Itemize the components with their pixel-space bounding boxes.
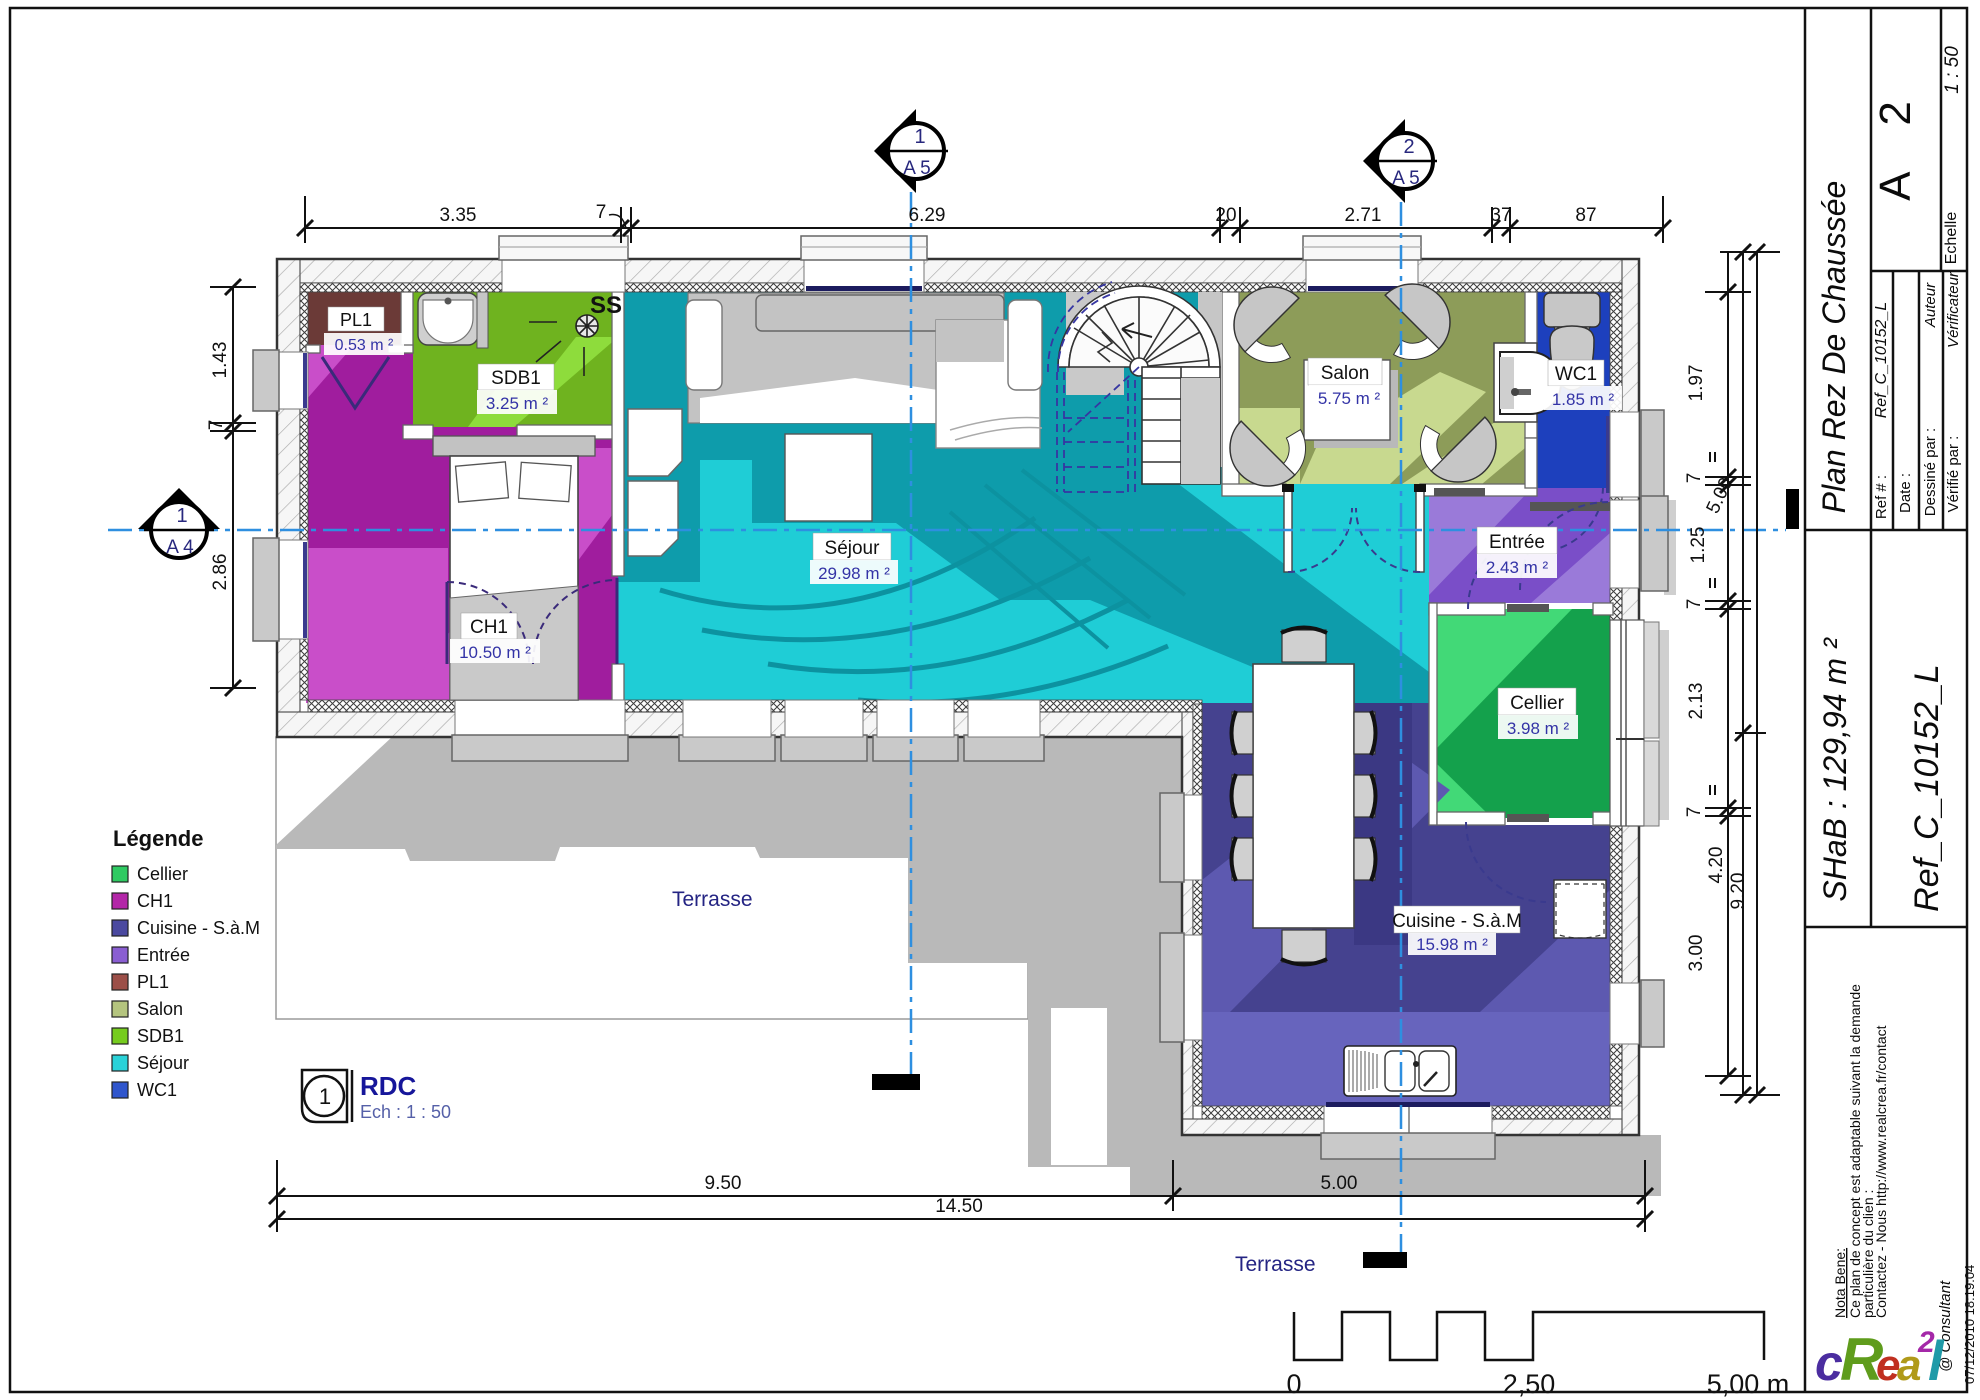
svg-text:3.98 m ²: 3.98 m ² — [1507, 719, 1570, 738]
svg-text:Salon: Salon — [1321, 363, 1370, 384]
svg-text:SDB1: SDB1 — [491, 368, 541, 389]
svg-text:3.00: 3.00 — [1686, 935, 1707, 972]
svg-text:A 4: A 4 — [166, 537, 194, 558]
svg-text:9.20: 9.20 — [1728, 873, 1749, 910]
svg-text:CH1: CH1 — [137, 891, 173, 911]
svg-text:Salon: Salon — [137, 999, 183, 1019]
svg-text:Séjour: Séjour — [825, 538, 881, 559]
svg-text:7: 7 — [1684, 599, 1705, 610]
svg-text:0.53 m ²: 0.53 m ² — [335, 337, 394, 354]
svg-text:Echelle: Echelle — [1943, 212, 1960, 265]
svg-text:Cuisine - S.à.M: Cuisine - S.à.M — [1392, 911, 1522, 932]
svg-text:Auteur: Auteur — [1922, 282, 1939, 328]
svg-text:CH1: CH1 — [470, 617, 508, 638]
svg-text:SS: SS — [590, 292, 622, 319]
svg-text:20: 20 — [1215, 205, 1236, 226]
svg-text:07/12/2010 18:19:04: 07/12/2010 18:19:04 — [1962, 1265, 1977, 1384]
svg-text:Vérifié par :: Vérifié par : — [1945, 436, 1962, 513]
svg-text:Ref_C_10152_L: Ref_C_10152_L — [1908, 664, 1946, 912]
svg-text:Entrée: Entrée — [1489, 532, 1545, 553]
svg-text:2.43 m ²: 2.43 m ² — [1486, 558, 1549, 577]
svg-text:A 5: A 5 — [1392, 168, 1419, 189]
svg-text:2,50: 2,50 — [1503, 1369, 1556, 1399]
svg-text:14.50: 14.50 — [935, 1196, 983, 1217]
svg-text:2.86: 2.86 — [210, 554, 231, 591]
svg-text:1.43: 1.43 — [210, 342, 231, 379]
svg-text:1 : 50: 1 : 50 — [1942, 46, 1963, 94]
svg-text:WC1: WC1 — [137, 1080, 177, 1100]
svg-text:Séjour: Séjour — [137, 1053, 189, 1073]
svg-text:Entrée: Entrée — [137, 945, 190, 965]
svg-text:SDB1: SDB1 — [137, 1026, 184, 1046]
svg-text:Cuisine - S.à.M: Cuisine - S.à.M — [137, 918, 260, 938]
svg-text:Ech : 1 : 50: Ech : 1 : 50 — [360, 1102, 451, 1122]
svg-text:7: 7 — [206, 420, 227, 431]
svg-text:c: c — [1815, 1335, 1843, 1391]
svg-text:7: 7 — [596, 202, 607, 223]
svg-text:Ref # :: Ref # : — [1873, 475, 1890, 519]
svg-text:Date :: Date : — [1897, 473, 1914, 513]
svg-text:Légende: Légende — [113, 826, 203, 851]
svg-text:87: 87 — [1575, 205, 1596, 226]
svg-text:Contactez - Nous http://www.re: Contactez - Nous http://www.realcrea.fr/… — [1873, 1025, 1889, 1318]
svg-text:1.25: 1.25 — [1688, 527, 1709, 564]
svg-text:1.97: 1.97 — [1686, 365, 1707, 402]
svg-text:3.35: 3.35 — [440, 205, 477, 226]
svg-text:Ref_C_10152_L: Ref_C_10152_L — [1873, 302, 1890, 419]
svg-text:Nota Bene:: Nota Bene: — [1832, 1248, 1848, 1318]
svg-text:5.75 m ²: 5.75 m ² — [1318, 389, 1381, 408]
svg-text:Terrasse: Terrasse — [672, 888, 753, 911]
svg-text:4.20: 4.20 — [1706, 847, 1727, 884]
svg-text:RDC: RDC — [360, 1071, 417, 1101]
svg-text:1.85 m ²: 1.85 m ² — [1552, 390, 1615, 409]
svg-text:Terrasse: Terrasse — [1235, 1253, 1316, 1276]
svg-text:Dessiné par :: Dessiné par : — [1922, 428, 1939, 516]
svg-text:0: 0 — [1286, 1369, 1301, 1399]
svg-text:Plan Rez De Chaussée: Plan Rez De Chaussée — [1816, 181, 1852, 514]
svg-text:WC1: WC1 — [1555, 364, 1597, 385]
svg-text:5.00: 5.00 — [1321, 1173, 1358, 1194]
svg-text:Cellier: Cellier — [137, 864, 188, 884]
svg-text:10.50 m ²: 10.50 m ² — [459, 643, 531, 662]
svg-text:1: 1 — [914, 126, 925, 148]
svg-text:A 2: A 2 — [1871, 83, 1920, 201]
svg-text:7: 7 — [1684, 807, 1705, 818]
svg-text:1: 1 — [319, 1084, 331, 1109]
svg-text:5,00 m: 5,00 m — [1707, 1369, 1790, 1399]
svg-text:7: 7 — [1684, 473, 1705, 484]
svg-text:PL1: PL1 — [340, 310, 372, 330]
svg-text:37: 37 — [1490, 205, 1511, 226]
svg-text:SHaB : 129,94 m ²: SHaB : 129,94 m ² — [1817, 637, 1853, 902]
svg-text:29.98 m ²: 29.98 m ² — [818, 564, 890, 583]
svg-text:Vérificateur: Vérificateur — [1945, 271, 1962, 348]
svg-text:A 5: A 5 — [903, 158, 930, 179]
svg-text:l: l — [1928, 1329, 1945, 1392]
svg-text:3.25 m ²: 3.25 m ² — [486, 394, 549, 413]
svg-text:2: 2 — [1403, 136, 1414, 158]
svg-text:2.13: 2.13 — [1686, 683, 1707, 720]
svg-text:15.98 m ²: 15.98 m ² — [1416, 935, 1488, 954]
svg-text:1: 1 — [176, 505, 187, 527]
svg-text:9.50: 9.50 — [705, 1173, 742, 1194]
svg-text:2.71: 2.71 — [1345, 205, 1382, 226]
svg-text:Cellier: Cellier — [1510, 693, 1565, 714]
svg-text:6.29: 6.29 — [909, 205, 946, 226]
svg-text:PL1: PL1 — [137, 972, 169, 992]
